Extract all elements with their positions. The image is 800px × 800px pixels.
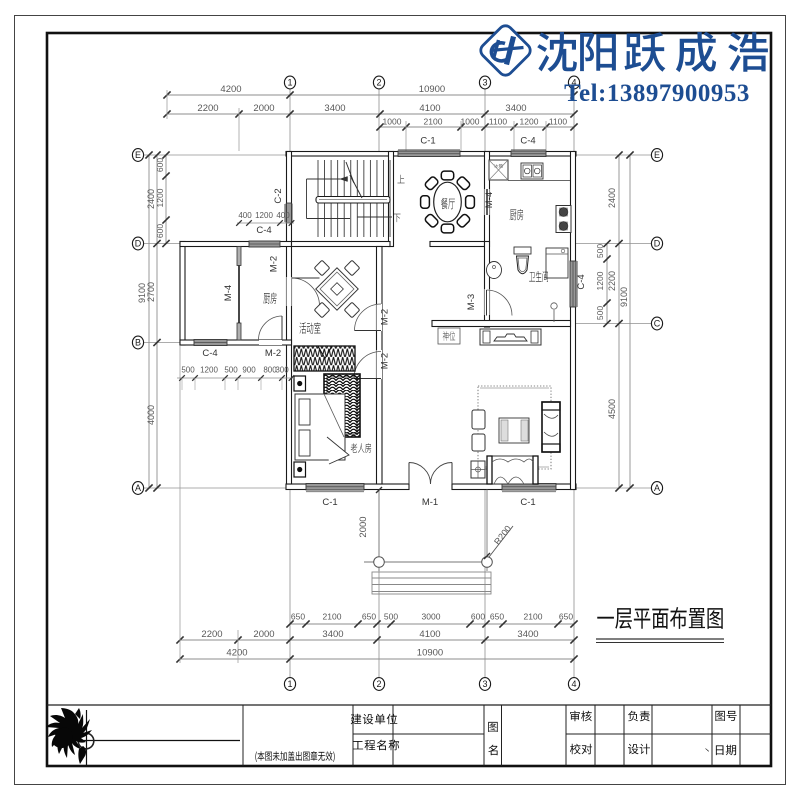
svg-text:300: 300	[275, 366, 289, 375]
svg-text:1200: 1200	[155, 188, 165, 207]
svg-text:500: 500	[224, 366, 238, 375]
svg-text:500: 500	[595, 244, 605, 258]
svg-text:600: 600	[155, 158, 165, 172]
svg-text:3: 3	[482, 78, 487, 88]
svg-text:3400: 3400	[322, 629, 343, 640]
svg-text:650: 650	[362, 612, 376, 622]
svg-text:3400: 3400	[324, 103, 345, 114]
svg-text:D: D	[654, 239, 661, 249]
svg-text:M-4: M-4	[484, 192, 495, 208]
svg-text:2100: 2100	[524, 612, 543, 622]
svg-text:4000: 4000	[146, 405, 156, 425]
svg-text:1200: 1200	[595, 271, 605, 290]
svg-text:2700: 2700	[146, 282, 156, 302]
svg-text:M-2: M-2	[380, 353, 391, 369]
svg-text:650: 650	[490, 612, 504, 622]
svg-text:1: 1	[287, 679, 292, 689]
svg-text:4: 4	[571, 679, 576, 689]
svg-text:600: 600	[155, 224, 165, 238]
svg-text:9100: 9100	[619, 287, 629, 307]
svg-text:C-2: C-2	[273, 188, 284, 203]
svg-text:M-4: M-4	[223, 285, 234, 301]
svg-text:400: 400	[238, 211, 252, 220]
svg-text:M-2: M-2	[380, 309, 391, 325]
svg-text:3400: 3400	[505, 103, 526, 114]
svg-text:1100: 1100	[489, 117, 508, 127]
svg-text:2000: 2000	[253, 629, 274, 640]
svg-text:500: 500	[384, 612, 398, 622]
svg-text:400: 400	[276, 211, 290, 220]
svg-text:900: 900	[242, 366, 256, 375]
svg-text:C-1: C-1	[322, 497, 337, 508]
svg-text:4200: 4200	[220, 84, 241, 95]
svg-text:1200: 1200	[520, 117, 539, 127]
svg-text:C-1: C-1	[420, 136, 435, 147]
svg-text:500: 500	[595, 306, 605, 320]
svg-text:C-4: C-4	[202, 348, 217, 359]
svg-text:C: C	[654, 319, 661, 329]
svg-text:E: E	[135, 150, 141, 160]
svg-text:1200: 1200	[200, 366, 218, 375]
svg-text:E: E	[654, 150, 660, 160]
svg-text:2200: 2200	[607, 271, 617, 291]
svg-text:4100: 4100	[419, 629, 440, 640]
svg-text:3400: 3400	[517, 629, 538, 640]
svg-text:B: B	[135, 338, 141, 348]
svg-text:M-3: M-3	[466, 294, 477, 310]
svg-text:2400: 2400	[607, 188, 617, 208]
svg-text:1100: 1100	[549, 117, 568, 127]
svg-text:650: 650	[559, 612, 573, 622]
svg-text:D: D	[135, 239, 142, 249]
svg-text:1: 1	[287, 78, 292, 88]
svg-text:C-1: C-1	[520, 497, 535, 508]
svg-text:500: 500	[181, 366, 195, 375]
svg-text:4100: 4100	[419, 103, 440, 114]
svg-text:650: 650	[291, 612, 305, 622]
svg-text:2: 2	[376, 78, 381, 88]
svg-text:1000: 1000	[461, 117, 480, 127]
svg-text:2200: 2200	[201, 629, 222, 640]
svg-text:4200: 4200	[226, 648, 247, 659]
svg-text:M-1: M-1	[422, 497, 438, 508]
svg-text:C-4: C-4	[520, 136, 535, 147]
svg-text:C-4: C-4	[576, 274, 587, 289]
svg-text:A: A	[135, 483, 141, 493]
svg-text:10900: 10900	[417, 648, 443, 659]
svg-text:1200: 1200	[255, 211, 273, 220]
svg-text:M-2: M-2	[265, 348, 281, 359]
svg-text:1000: 1000	[383, 117, 402, 127]
svg-text:3: 3	[482, 679, 487, 689]
svg-text:2: 2	[376, 679, 381, 689]
svg-text:4500: 4500	[607, 399, 617, 419]
svg-text:A: A	[654, 483, 660, 493]
svg-text:2000: 2000	[253, 103, 274, 114]
svg-text:10900: 10900	[419, 84, 445, 95]
svg-text:3000: 3000	[422, 612, 441, 622]
svg-text:2200: 2200	[197, 103, 218, 114]
svg-text:C-4: C-4	[256, 225, 271, 236]
svg-text:M-2: M-2	[269, 256, 280, 272]
svg-text:600: 600	[471, 612, 485, 622]
svg-text:2100: 2100	[424, 117, 443, 127]
svg-text:2100: 2100	[323, 612, 342, 622]
svg-text:2000: 2000	[358, 516, 369, 537]
svg-text:Tel:13897900953: Tel:13897900953	[564, 80, 750, 107]
